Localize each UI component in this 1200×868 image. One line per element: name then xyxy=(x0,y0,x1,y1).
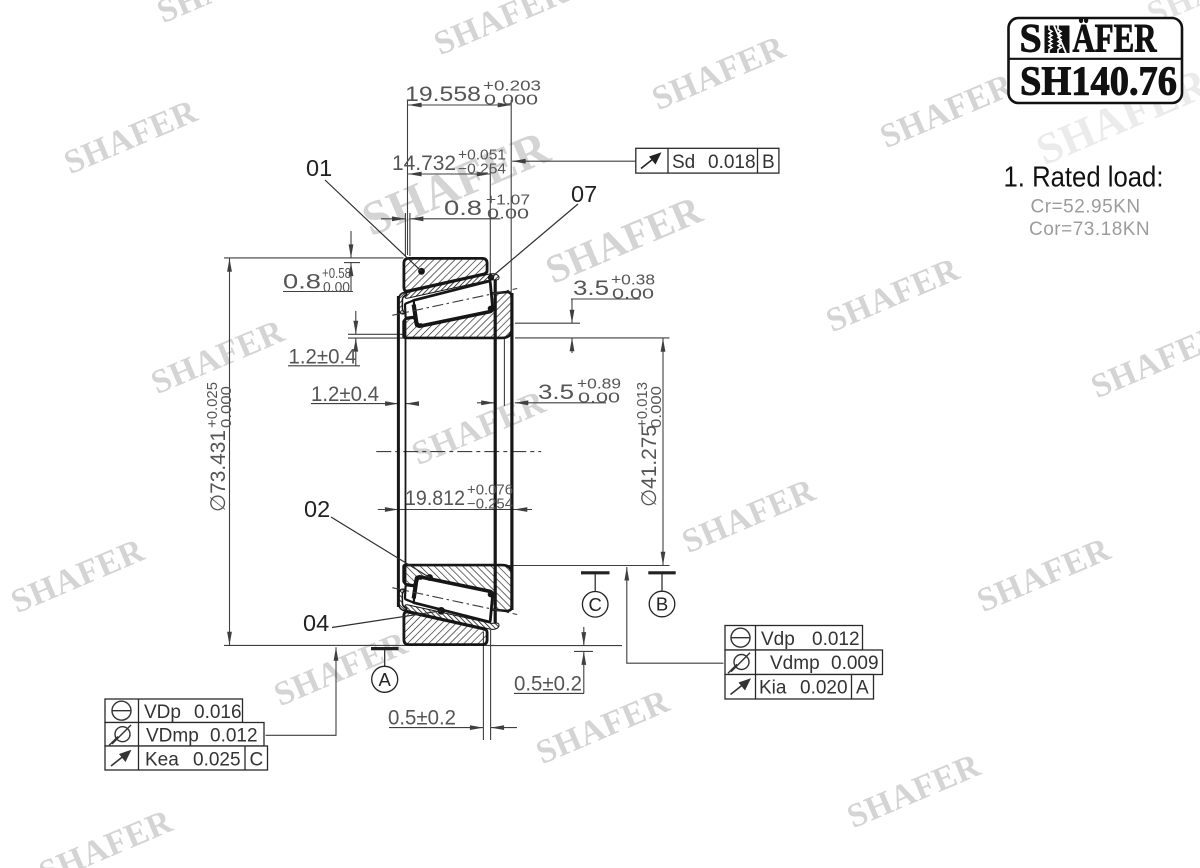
svg-text:0.8: 0.8 xyxy=(444,197,482,220)
svg-text:Vdmp: Vdmp xyxy=(770,653,820,674)
svg-text:19.558: 19.558 xyxy=(405,83,481,106)
svg-text:SHAFER: SHAFER xyxy=(821,251,965,340)
svg-text:SHAFER: SHAFER xyxy=(647,29,791,118)
svg-text:0.000: 0.000 xyxy=(649,386,665,428)
svg-text:3.5: 3.5 xyxy=(538,381,574,404)
svg-text:0.012: 0.012 xyxy=(210,726,258,747)
svg-text:07: 07 xyxy=(571,181,597,207)
svg-text:C: C xyxy=(589,594,602,615)
svg-text:0.5±0.2: 0.5±0.2 xyxy=(514,672,582,695)
svg-text:0.00: 0.00 xyxy=(578,391,620,407)
svg-text:∅73.431: ∅73.431 xyxy=(207,430,230,512)
svg-text:0.016: 0.016 xyxy=(194,702,242,723)
svg-text:B: B xyxy=(656,594,668,615)
svg-text:SHAFER: SHAFER xyxy=(531,683,675,772)
svg-text:1. Rated load:: 1. Rated load: xyxy=(1004,162,1164,194)
svg-text:Sd: Sd xyxy=(672,152,695,173)
svg-text:3.5: 3.5 xyxy=(573,277,609,300)
svg-text:SHAFER: SHAFER xyxy=(34,803,178,868)
svg-text:SHAFER: SHAFER xyxy=(355,120,558,246)
svg-text:A: A xyxy=(379,669,392,690)
svg-text:SHAFER: SHAFER xyxy=(842,747,986,836)
svg-text:19.812: 19.812 xyxy=(405,487,465,510)
svg-text:Vdp: Vdp xyxy=(761,629,795,650)
svg-text:ÄFER: ÄFER xyxy=(1073,16,1158,61)
svg-text:VDmp: VDmp xyxy=(146,726,199,747)
svg-text:∅41.275: ∅41.275 xyxy=(638,425,661,507)
svg-text:Cr=52.95KN: Cr=52.95KN xyxy=(1031,197,1141,218)
svg-text:SHAFER: SHAFER xyxy=(6,532,150,621)
svg-text:SH140.76: SH140.76 xyxy=(1020,58,1177,104)
svg-text:0.018: 0.018 xyxy=(708,152,756,173)
svg-text:S: S xyxy=(1020,16,1042,61)
svg-text:1.2±0.4: 1.2±0.4 xyxy=(311,383,379,406)
svg-text:SHAFER: SHAFER xyxy=(677,472,821,561)
svg-text:Kia: Kia xyxy=(759,678,787,699)
svg-text:Kea: Kea xyxy=(145,750,179,771)
svg-text:C: C xyxy=(250,750,264,771)
svg-text:SHAFER: SHAFER xyxy=(429,0,573,63)
svg-text:−0.254: −0.254 xyxy=(458,162,506,178)
svg-text:VDp: VDp xyxy=(144,702,181,723)
svg-text:SHAFER: SHAFER xyxy=(59,93,203,182)
svg-text:0.000: 0.000 xyxy=(219,386,235,428)
svg-text:0.5±0.2: 0.5±0.2 xyxy=(388,707,456,730)
svg-text:04: 04 xyxy=(303,610,329,636)
svg-text:SHAFER: SHAFER xyxy=(152,0,296,31)
svg-text:SHAFER: SHAFER xyxy=(972,531,1116,620)
svg-text:SHAFER: SHAFER xyxy=(875,67,1019,156)
svg-text:0.00: 0.00 xyxy=(612,287,654,303)
svg-text:−0.254: −0.254 xyxy=(467,497,513,513)
svg-text:0.00: 0.00 xyxy=(487,207,529,223)
svg-text:0.012: 0.012 xyxy=(812,629,860,650)
svg-text:SHAFER: SHAFER xyxy=(269,625,413,714)
svg-text:0.00: 0.00 xyxy=(323,280,350,296)
svg-text:0.000: 0.000 xyxy=(484,93,538,109)
svg-text:02: 02 xyxy=(304,496,330,522)
svg-text:SHAFER: SHAFER xyxy=(407,384,551,473)
svg-text:0.8: 0.8 xyxy=(283,271,321,294)
svg-text:0.009: 0.009 xyxy=(831,653,879,674)
svg-text:SHAFER: SHAFER xyxy=(1086,317,1200,406)
svg-text:A: A xyxy=(856,678,869,699)
svg-text:0.025: 0.025 xyxy=(193,750,241,771)
svg-text:14.732: 14.732 xyxy=(392,152,456,175)
svg-text:Cor=73.18KN: Cor=73.18KN xyxy=(1029,219,1150,240)
svg-text:0.020: 0.020 xyxy=(800,678,848,699)
svg-text:1.2±0.4: 1.2±0.4 xyxy=(289,346,357,369)
svg-text:01: 01 xyxy=(306,155,332,181)
svg-text:B: B xyxy=(762,152,775,173)
